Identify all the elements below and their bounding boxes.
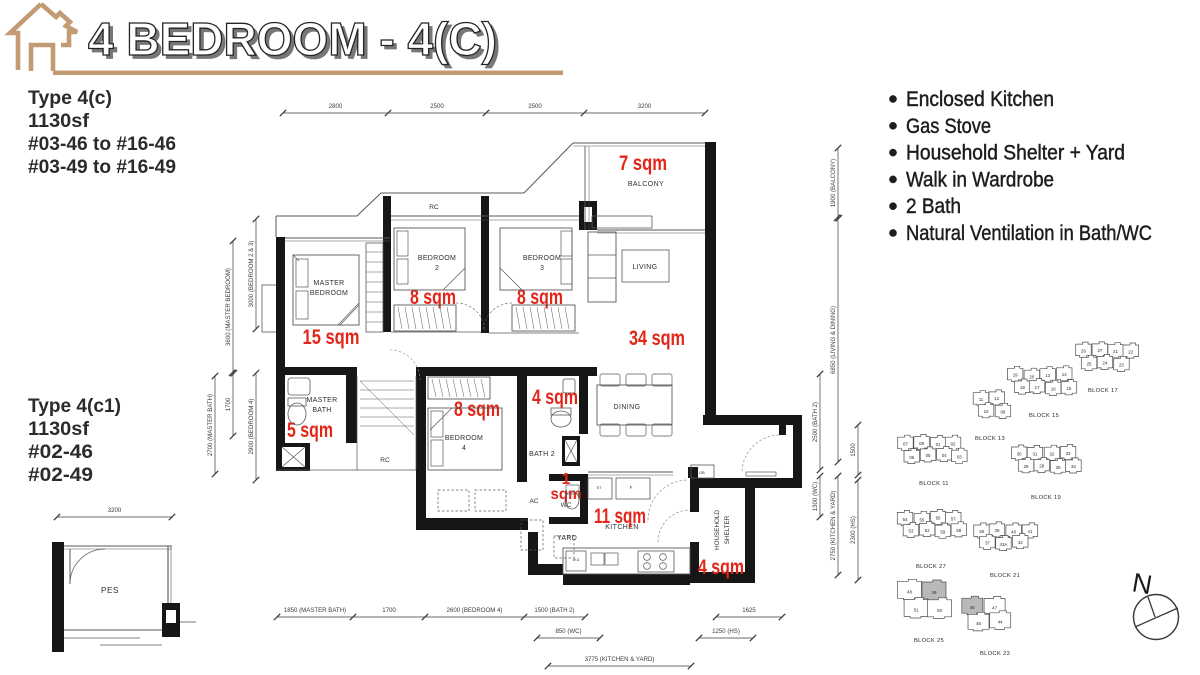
svg-text:BALCONY: BALCONY xyxy=(628,181,664,188)
svg-text:2500: 2500 xyxy=(430,103,444,110)
svg-text:44: 44 xyxy=(998,620,1003,625)
svg-text:31: 31 xyxy=(1032,452,1037,457)
svg-text:02: 02 xyxy=(951,441,956,446)
svg-text:1900 (BALCONY): 1900 (BALCONY) xyxy=(830,159,837,207)
svg-text:3600 (MASTER BEDROOM): 3600 (MASTER BEDROOM) xyxy=(225,268,232,346)
svg-text:56: 56 xyxy=(936,516,941,521)
svg-text:2700 (MASTER BATH): 2700 (MASTER BATH) xyxy=(207,394,214,456)
svg-text:2 Bath: 2 Bath xyxy=(906,195,961,218)
svg-text:2900 (BEDROOM 4): 2900 (BEDROOM 4) xyxy=(248,399,255,455)
svg-text:Walk in Wardrobe: Walk in Wardrobe xyxy=(906,168,1054,191)
svg-text:53: 53 xyxy=(909,529,914,534)
svg-text:4 sqm: 4 sqm xyxy=(532,385,578,409)
svg-text:Household Shelter + Yard: Household Shelter + Yard xyxy=(906,142,1125,165)
svg-text:BLOCK 13: BLOCK 13 xyxy=(975,436,1005,442)
svg-text:06: 06 xyxy=(909,455,914,460)
svg-text:19: 19 xyxy=(1013,373,1018,378)
svg-text:21: 21 xyxy=(1113,349,1118,354)
svg-text:03: 03 xyxy=(957,454,962,459)
svg-text:3000 (BEDROOM 2 & 3): 3000 (BEDROOM 2 & 3) xyxy=(248,241,255,308)
svg-text:BLOCK 11: BLOCK 11 xyxy=(919,481,949,487)
svg-text:Type 4(c1): Type 4(c1) xyxy=(28,396,121,417)
svg-text:Enclosed Kitchen: Enclosed Kitchen xyxy=(906,88,1054,111)
svg-text:4 sqm: 4 sqm xyxy=(698,555,744,579)
svg-text:3200: 3200 xyxy=(638,103,652,110)
svg-text:15: 15 xyxy=(1066,386,1071,391)
svg-text:11 sqm: 11 sqm xyxy=(594,504,646,528)
svg-text:22: 22 xyxy=(1128,349,1133,354)
svg-text:AC: AC xyxy=(529,498,538,505)
svg-text:47: 47 xyxy=(992,605,997,610)
svg-text:34 sqm: 34 sqm xyxy=(629,326,685,350)
svg-text:1130sf: 1130sf xyxy=(28,111,90,132)
svg-text:30: 30 xyxy=(1017,451,1022,456)
svg-text:29: 29 xyxy=(1024,464,1029,469)
svg-text:RC: RC xyxy=(429,204,439,211)
svg-text:45: 45 xyxy=(976,621,981,626)
svg-text:1130sf: 1130sf xyxy=(28,419,90,440)
svg-text:12: 12 xyxy=(994,396,999,401)
svg-text:14: 14 xyxy=(1062,372,1067,377)
svg-text:48: 48 xyxy=(907,590,912,595)
svg-text:13: 13 xyxy=(1045,373,1050,378)
svg-text:33: 33 xyxy=(1066,451,1071,456)
svg-text:16: 16 xyxy=(1051,387,1056,392)
svg-text:BLOCK 21: BLOCK 21 xyxy=(990,573,1020,579)
svg-text:W.D: W.D xyxy=(573,558,580,562)
svg-text:Natural Ventilation in Bath/WC: Natural Ventilation in Bath/WC xyxy=(906,222,1152,245)
svg-text:55: 55 xyxy=(919,518,924,523)
svg-text:F: F xyxy=(630,485,633,490)
svg-text:HOUSEHOLD: HOUSEHOLD xyxy=(714,510,721,550)
svg-text:2500: 2500 xyxy=(528,103,542,110)
svg-text:MASTER: MASTER xyxy=(307,397,338,404)
svg-text:850 (WC): 850 (WC) xyxy=(555,628,581,635)
svg-text:52: 52 xyxy=(925,528,930,533)
svg-text:SHELTER: SHELTER xyxy=(724,515,731,544)
svg-text:59: 59 xyxy=(940,529,945,534)
svg-text:54: 54 xyxy=(903,517,908,522)
svg-text:BLOCK 15: BLOCK 15 xyxy=(1029,413,1059,419)
svg-text:32: 32 xyxy=(1050,451,1055,456)
svg-text:BLOCK 23: BLOCK 23 xyxy=(980,651,1010,657)
svg-text:15 sqm: 15 sqm xyxy=(303,325,360,349)
svg-text:DINING: DINING xyxy=(614,404,641,411)
svg-text:2600 (BEDROOM 4): 2600 (BEDROOM 4) xyxy=(447,607,503,614)
svg-text:3: 3 xyxy=(540,265,544,272)
svg-text:39: 39 xyxy=(995,528,1000,533)
svg-text:37: 37 xyxy=(985,541,990,546)
svg-text:1250 (HS): 1250 (HS) xyxy=(712,628,740,635)
svg-text:Gas Stove: Gas Stove xyxy=(906,115,991,138)
svg-text:07: 07 xyxy=(903,442,908,447)
svg-text:17: 17 xyxy=(1035,385,1040,390)
svg-text:49: 49 xyxy=(932,590,937,595)
svg-text:11: 11 xyxy=(979,397,984,402)
svg-text:3775 (KITCHEN & YARD): 3775 (KITCHEN & YARD) xyxy=(585,656,655,663)
svg-text:40: 40 xyxy=(1011,529,1016,534)
svg-text:38: 38 xyxy=(979,529,984,534)
svg-text:04: 04 xyxy=(942,453,947,458)
svg-text:2500 (BATH 2): 2500 (BATH 2) xyxy=(812,402,819,442)
svg-text:BEDROOM: BEDROOM xyxy=(310,290,348,297)
svg-text:BEDROOM: BEDROOM xyxy=(523,255,561,262)
svg-text:1625: 1625 xyxy=(742,607,756,614)
svg-text:BLOCK 17: BLOCK 17 xyxy=(1088,388,1118,394)
svg-text:#02-49: #02-49 xyxy=(28,465,93,486)
svg-text:2750 (KITCHEN & YARD): 2750 (KITCHEN & YARD) xyxy=(830,491,837,561)
svg-text:1300 (WC): 1300 (WC) xyxy=(812,482,819,511)
svg-text:18: 18 xyxy=(1020,385,1025,390)
svg-text:4 BEDROOM - 4(C): 4 BEDROOM - 4(C) xyxy=(88,13,497,65)
svg-text:2: 2 xyxy=(435,265,439,272)
svg-text:Type 4(c): Type 4(c) xyxy=(28,88,112,109)
svg-text:BEDROOM: BEDROOM xyxy=(418,255,456,262)
svg-text:BLOCK 19: BLOCK 19 xyxy=(1031,495,1061,501)
svg-text:4: 4 xyxy=(462,445,466,452)
svg-text:BATH 2: BATH 2 xyxy=(529,451,555,458)
svg-text:57: 57 xyxy=(951,517,956,522)
svg-text:#03-46 to #16-46: #03-46 to #16-46 xyxy=(28,134,176,155)
svg-text:BATH: BATH xyxy=(312,407,331,414)
svg-text:BEDROOM: BEDROOM xyxy=(445,435,483,442)
svg-text:#02-46: #02-46 xyxy=(28,442,93,463)
svg-text:1700: 1700 xyxy=(225,397,232,411)
svg-text:24: 24 xyxy=(1103,361,1108,366)
svg-text:PES: PES xyxy=(101,586,119,595)
svg-text:10: 10 xyxy=(984,409,989,414)
svg-text:41: 41 xyxy=(1028,529,1033,534)
svg-text:58: 58 xyxy=(956,528,961,533)
svg-text:42: 42 xyxy=(1018,540,1023,545)
svg-text:3200: 3200 xyxy=(108,507,122,514)
svg-text:#03-49 to #16-49: #03-49 to #16-49 xyxy=(28,157,176,178)
svg-text:8 sqm: 8 sqm xyxy=(454,397,500,421)
svg-text:51: 51 xyxy=(914,608,919,613)
svg-text:27: 27 xyxy=(1097,348,1102,353)
svg-text:20: 20 xyxy=(1029,374,1034,379)
svg-text:23: 23 xyxy=(1119,363,1124,368)
svg-text:BLOCK 27: BLOCK 27 xyxy=(916,564,946,570)
svg-text:43A: 43A xyxy=(1000,542,1008,547)
svg-text:1850 (MASTER BATH): 1850 (MASTER BATH) xyxy=(284,607,346,614)
svg-text:2800: 2800 xyxy=(329,103,343,110)
svg-text:25: 25 xyxy=(1087,362,1092,367)
svg-text:ST: ST xyxy=(597,486,603,490)
svg-text:7 sqm: 7 sqm xyxy=(619,151,667,175)
svg-text:01: 01 xyxy=(936,442,941,447)
svg-text:05: 05 xyxy=(926,453,931,458)
svg-text:50: 50 xyxy=(937,608,942,613)
svg-text:MASTER: MASTER xyxy=(314,280,345,287)
svg-text:2300 (HS): 2300 (HS) xyxy=(850,516,857,544)
svg-text:5 sqm: 5 sqm xyxy=(287,418,333,442)
svg-text:RC: RC xyxy=(380,457,390,464)
svg-text:34: 34 xyxy=(1071,464,1076,469)
svg-text:LIVING: LIVING xyxy=(633,264,658,271)
svg-text:1700: 1700 xyxy=(382,607,396,614)
svg-text:46: 46 xyxy=(970,605,975,610)
svg-text:28: 28 xyxy=(1039,464,1044,469)
svg-text:09: 09 xyxy=(1000,410,1005,415)
svg-text:BLOCK 25: BLOCK 25 xyxy=(914,638,944,644)
svg-text:DB: DB xyxy=(699,471,705,475)
svg-text:35: 35 xyxy=(1056,465,1061,470)
svg-text:26: 26 xyxy=(1081,348,1086,353)
svg-text:6850 (LIVING & DINING): 6850 (LIVING & DINING) xyxy=(830,306,837,374)
svg-text:08: 08 xyxy=(919,441,924,446)
svg-text:1500 (BATH 2): 1500 (BATH 2) xyxy=(534,607,574,614)
svg-text:1500: 1500 xyxy=(850,443,857,457)
